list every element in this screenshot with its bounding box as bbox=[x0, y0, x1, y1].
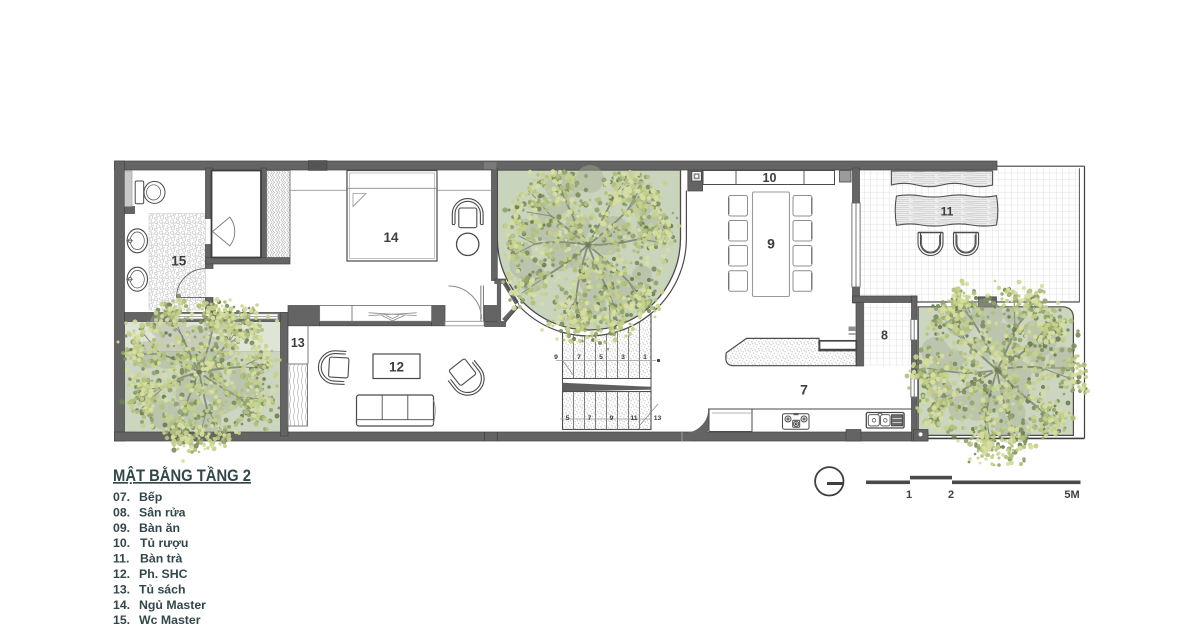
svg-text:Ngủ Master: Ngủ Master bbox=[139, 598, 206, 612]
svg-text:07.: 07. bbox=[113, 490, 130, 504]
svg-text:12.: 12. bbox=[113, 567, 130, 581]
svg-text:5M: 5M bbox=[1064, 489, 1079, 501]
svg-text:9: 9 bbox=[767, 236, 775, 252]
svg-text:08.: 08. bbox=[113, 505, 130, 519]
svg-text:5: 5 bbox=[566, 415, 570, 422]
svg-text:3: 3 bbox=[621, 354, 625, 361]
svg-text:9: 9 bbox=[610, 415, 614, 422]
svg-text:10.: 10. bbox=[113, 536, 130, 550]
svg-text:12: 12 bbox=[389, 360, 404, 375]
svg-text:11: 11 bbox=[941, 205, 954, 219]
svg-text:1: 1 bbox=[906, 489, 912, 501]
svg-text:Tủ rượu: Tủ rượu bbox=[140, 536, 188, 550]
svg-text:2: 2 bbox=[948, 489, 954, 501]
svg-text:Bàn ăn: Bàn ăn bbox=[139, 521, 180, 535]
svg-text:7: 7 bbox=[577, 354, 581, 361]
svg-text:Tủ sách: Tủ sách bbox=[139, 582, 185, 596]
svg-text:9: 9 bbox=[554, 354, 558, 361]
svg-text:10: 10 bbox=[763, 171, 777, 185]
svg-text:11.: 11. bbox=[113, 552, 129, 566]
svg-text:14: 14 bbox=[383, 230, 399, 245]
svg-text:14.: 14. bbox=[113, 598, 130, 612]
svg-text:7: 7 bbox=[800, 382, 808, 398]
svg-text:13.: 13. bbox=[113, 582, 130, 596]
svg-text:13: 13 bbox=[291, 336, 305, 350]
svg-text:Bàn trà: Bàn trà bbox=[140, 552, 183, 566]
svg-text:1: 1 bbox=[643, 354, 647, 361]
svg-text:7: 7 bbox=[588, 415, 592, 422]
svg-text:09.: 09. bbox=[113, 521, 130, 535]
svg-text:15.: 15. bbox=[113, 613, 130, 627]
svg-text:13: 13 bbox=[654, 415, 662, 422]
svg-text:MẬT BẰNG TẦNG 2: MẬT BẰNG TẦNG 2 bbox=[113, 466, 251, 485]
svg-text:11: 11 bbox=[630, 415, 637, 422]
svg-text:Ph. SHC: Ph. SHC bbox=[139, 567, 188, 581]
svg-text:8: 8 bbox=[881, 329, 888, 343]
svg-text:Wc Master: Wc Master bbox=[139, 613, 201, 627]
svg-text:15: 15 bbox=[171, 254, 187, 269]
svg-text:Bếp: Bếp bbox=[139, 490, 162, 504]
svg-text:5: 5 bbox=[599, 354, 603, 361]
svg-text:Sân rửa: Sân rửa bbox=[139, 505, 186, 519]
